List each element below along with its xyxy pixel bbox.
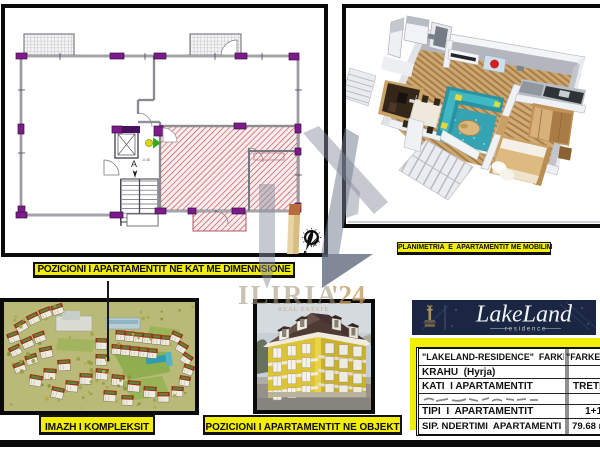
svg-text:REAL ESTATE: REAL ESTATE — [278, 306, 329, 313]
svg-text:'24: '24 — [331, 280, 366, 310]
